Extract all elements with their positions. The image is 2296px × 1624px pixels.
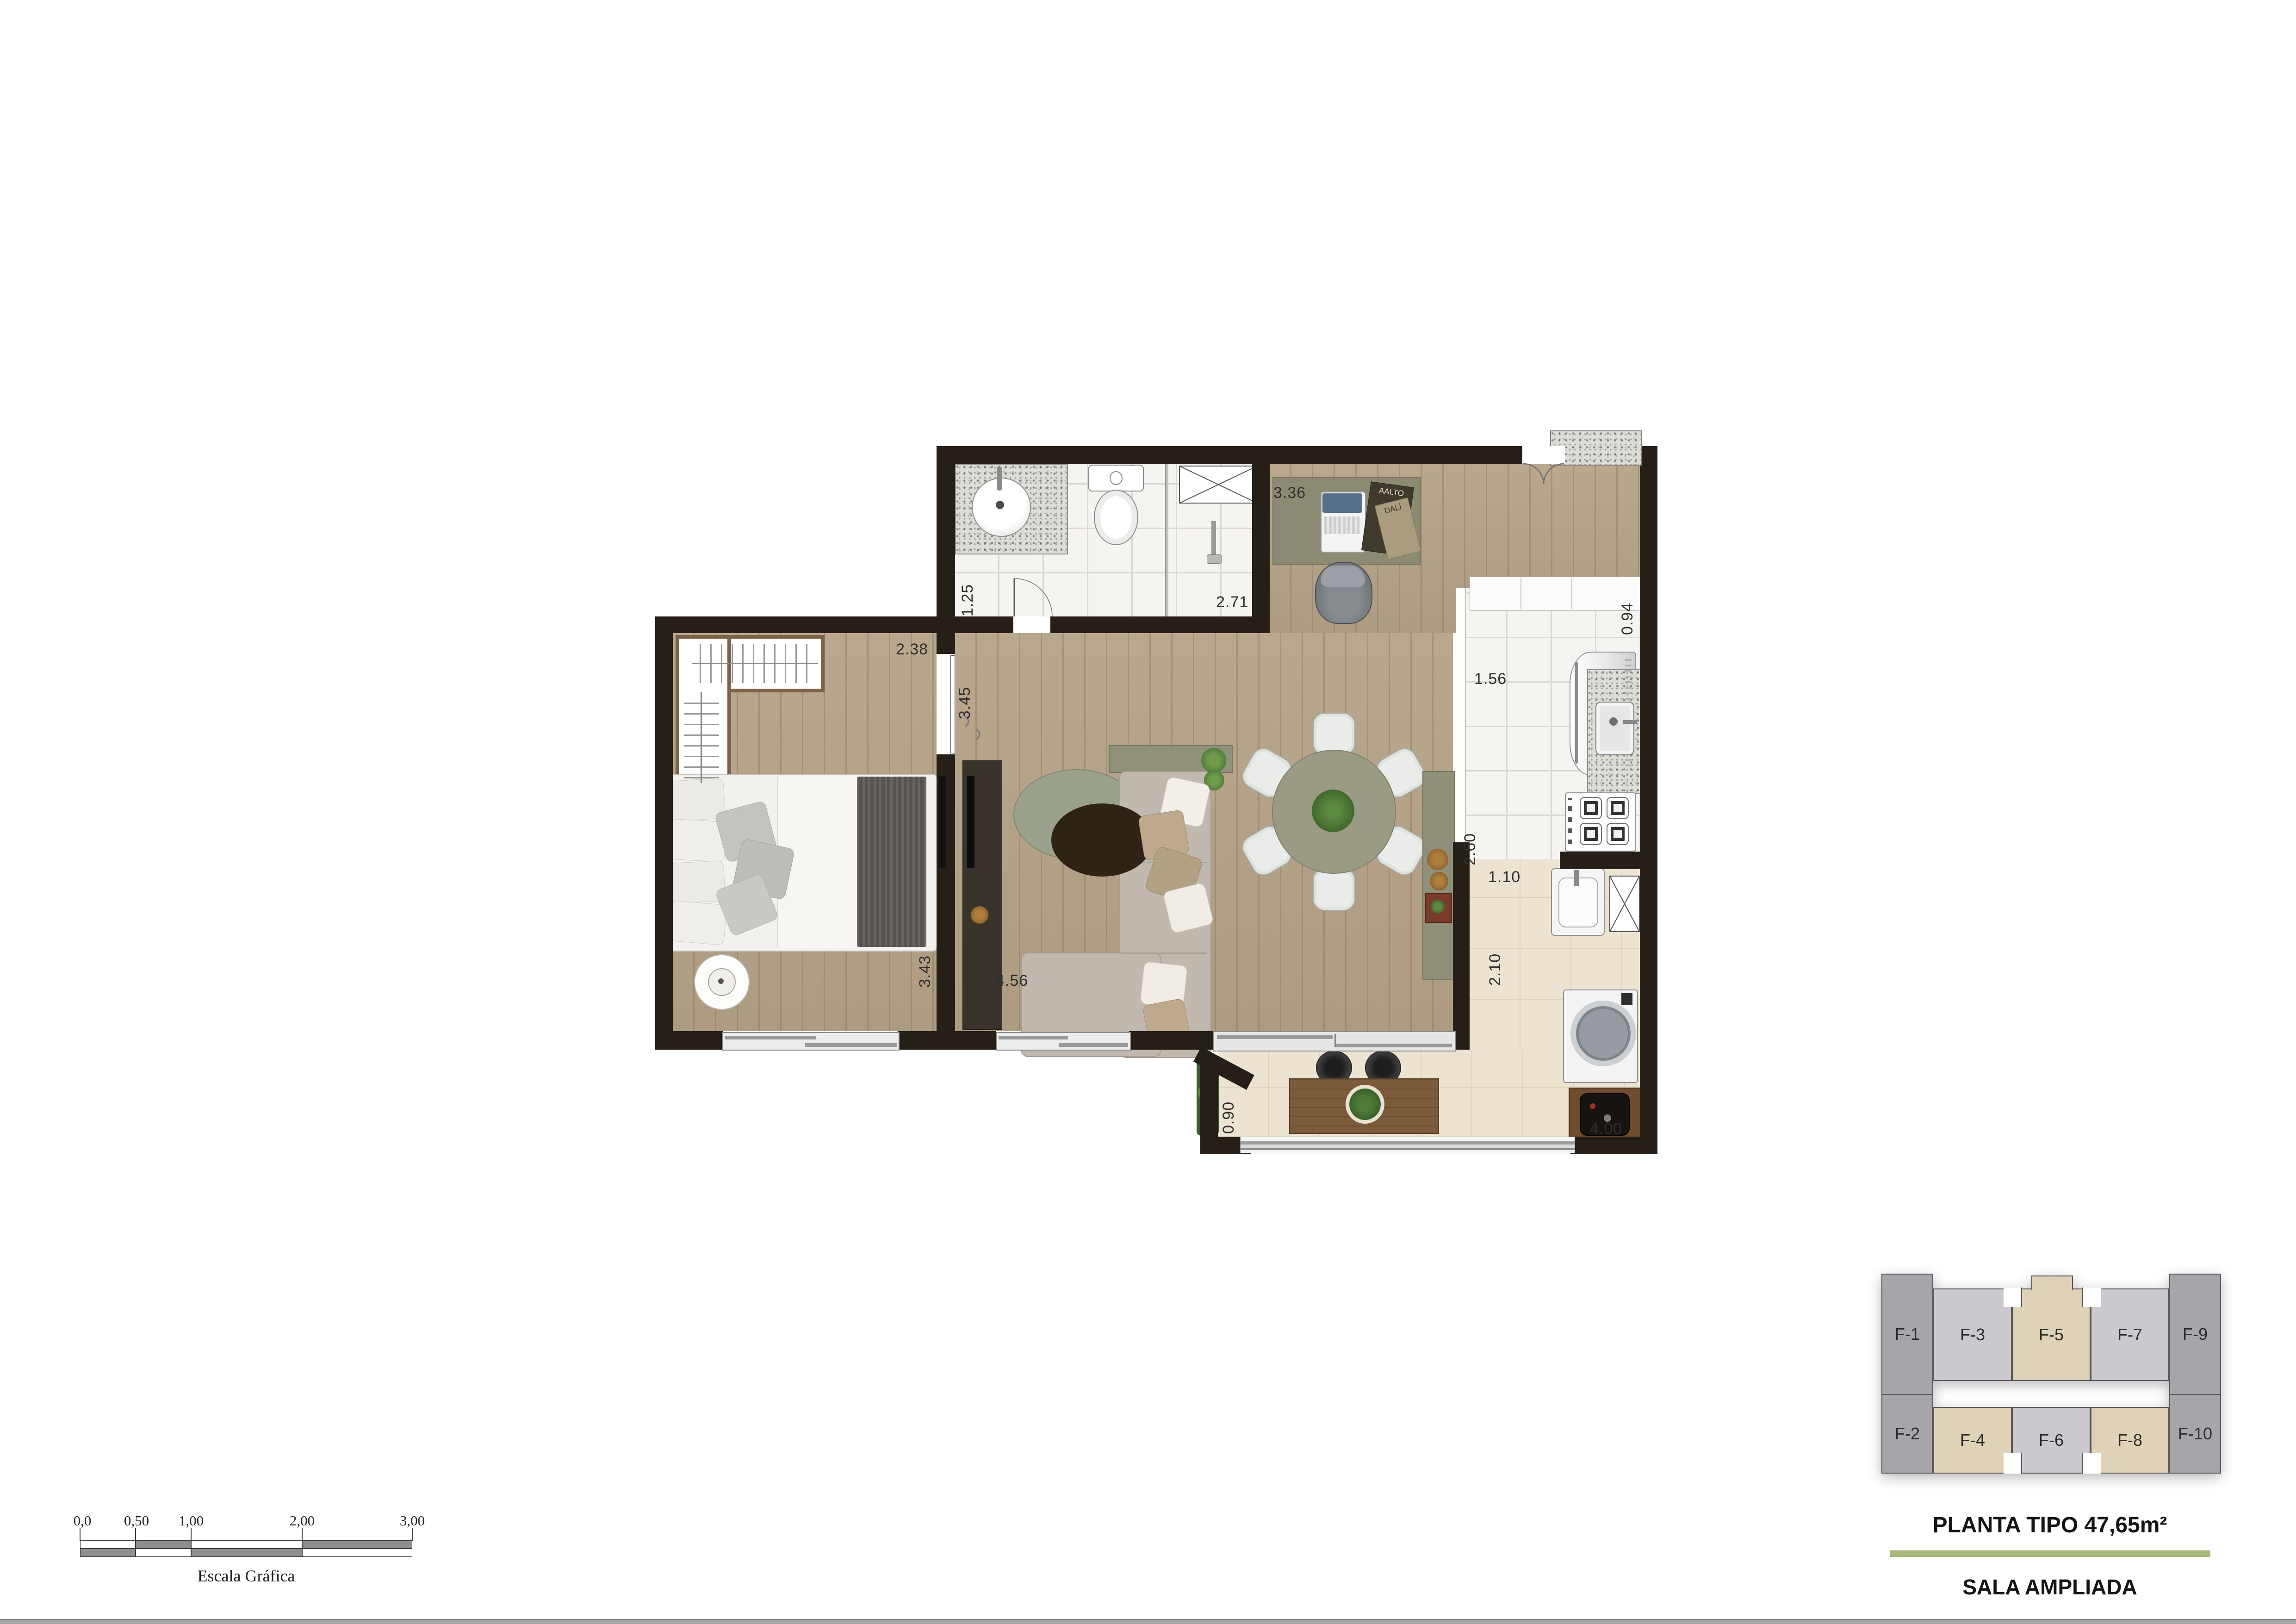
dim-bathroom-length: 2.71 bbox=[1216, 593, 1248, 611]
dim-bedroom-length: 3.43 bbox=[916, 937, 934, 988]
sideboard-tray-plant bbox=[1431, 900, 1445, 914]
dim-living-top: 3.36 bbox=[1273, 484, 1306, 502]
bedroom-tv bbox=[939, 776, 946, 868]
terrace-railing bbox=[1240, 1137, 1575, 1153]
wall-terrace-bottom-right bbox=[1570, 1137, 1657, 1154]
key-unit-label: F-6 bbox=[2039, 1431, 2064, 1450]
title-divider bbox=[1890, 1550, 2210, 1557]
dim-hall-height: 3.45 bbox=[956, 668, 974, 719]
wall-bathroom-left bbox=[937, 464, 955, 616]
table-lamp-icon bbox=[718, 978, 724, 984]
terrace-sliding-door bbox=[1213, 1031, 1456, 1052]
dim-bathroom-width: 1.25 bbox=[959, 566, 977, 616]
panel-decor bbox=[971, 906, 988, 924]
key-notch bbox=[2004, 1288, 2022, 1307]
wall-bathroom-bottom-right bbox=[1050, 616, 1270, 633]
table-centerpiece-plant bbox=[1312, 790, 1354, 832]
cabinet-divider bbox=[1571, 578, 1572, 609]
key-unit-f5: F-5 bbox=[2012, 1288, 2091, 1381]
scale-label-0: 0,0 bbox=[68, 1512, 96, 1529]
dim-living-width: 4.56 bbox=[996, 972, 1028, 990]
scale-bar-segment bbox=[80, 1540, 136, 1549]
key-unit-label: F-7 bbox=[2117, 1325, 2142, 1344]
dining-chair bbox=[1313, 713, 1355, 755]
wall-right bbox=[1640, 446, 1657, 1154]
page-bottom-edge bbox=[0, 1619, 2296, 1624]
kitchen-sink bbox=[1595, 702, 1634, 755]
sideboard-decor bbox=[1430, 872, 1448, 890]
bed-throw bbox=[857, 777, 926, 947]
wall-bedroom-top bbox=[655, 616, 962, 633]
key-unit-label: F-8 bbox=[2117, 1431, 2142, 1450]
shower-head-icon bbox=[1211, 521, 1216, 556]
key-unit-f7: F-7 bbox=[2091, 1288, 2169, 1381]
shower-partition bbox=[1165, 464, 1168, 616]
dim-kitchen-width: 1.56 bbox=[1474, 670, 1507, 688]
scale-tick bbox=[412, 1528, 413, 1541]
scale-bar-segment bbox=[136, 1540, 191, 1549]
scale-tick bbox=[302, 1528, 303, 1541]
entry-door-opening bbox=[1522, 446, 1565, 464]
wall-service-left bbox=[1453, 842, 1470, 1050]
terrace-table-plant bbox=[1349, 1089, 1381, 1120]
key-unit-label: F-9 bbox=[2183, 1325, 2208, 1344]
kitchen-counter-edge bbox=[1456, 588, 1466, 852]
scale-bar-segment bbox=[302, 1549, 412, 1557]
kitchen-faucet-icon bbox=[1609, 717, 1618, 726]
panel-decor bbox=[966, 936, 987, 956]
scale-bar-segment bbox=[302, 1540, 412, 1549]
laptop-keyboard bbox=[1324, 516, 1360, 534]
stove-burner bbox=[1580, 797, 1602, 819]
key-unit-label: F-3 bbox=[1960, 1325, 1985, 1344]
scale-tick bbox=[191, 1528, 192, 1541]
office-chair-back bbox=[1321, 566, 1365, 587]
dim-bedroom-width: 2.38 bbox=[896, 641, 928, 659]
scale-label-300: 3,00 bbox=[394, 1512, 431, 1529]
fridge-handle bbox=[1575, 662, 1578, 764]
key-unit-label: F-5 bbox=[2039, 1325, 2064, 1344]
scale-bar-segment bbox=[136, 1549, 191, 1557]
key-unit-f9: F-9 bbox=[2169, 1274, 2221, 1395]
toilet-button bbox=[1110, 471, 1123, 485]
wardrobe-rail bbox=[692, 663, 818, 664]
scale-bar-segment bbox=[191, 1540, 302, 1549]
dim-service-length: 2.10 bbox=[1486, 935, 1504, 986]
key-unit-f1: F-1 bbox=[1881, 1274, 1933, 1395]
kitchen-cabinet-band bbox=[1470, 577, 1641, 611]
cabinet-divider bbox=[1520, 578, 1521, 609]
floorplan-page: AALTO DALÍ bbox=[0, 0, 2296, 1624]
wall-bedroom-left bbox=[655, 616, 673, 1050]
key-unit-f2: F-2 bbox=[1881, 1394, 1933, 1474]
bathroom-faucet-icon bbox=[997, 467, 1002, 491]
key-unit-label: F-2 bbox=[1895, 1424, 1920, 1444]
scale-label-050: 0,50 bbox=[118, 1512, 155, 1529]
washer-controls bbox=[1621, 993, 1632, 1005]
living-window bbox=[996, 1032, 1131, 1051]
kitchen-faucet-icon bbox=[1623, 720, 1637, 724]
bathroom-faucet-icon bbox=[996, 501, 1004, 509]
key-unit-f4: F-4 bbox=[1933, 1407, 2012, 1474]
console-plant bbox=[1201, 748, 1226, 773]
scale-label-100: 1,00 bbox=[173, 1512, 210, 1529]
dining-chair bbox=[1313, 868, 1355, 911]
sofa-seam bbox=[1122, 952, 1207, 954]
stove-knobs bbox=[1568, 798, 1572, 844]
scale-caption: Escala Gráfica bbox=[154, 1566, 339, 1586]
dim-kitchen-length: 2.60 bbox=[1461, 815, 1479, 865]
scale-tick bbox=[135, 1528, 136, 1541]
bbq-ember bbox=[1590, 1103, 1595, 1109]
bathroom-window bbox=[1179, 466, 1258, 504]
sideboard-decor bbox=[1427, 849, 1448, 870]
laptop-screen bbox=[1322, 493, 1362, 513]
key-plan: F-1 F-2 F-9 F-10 F-3 F-5 F-7 F-4 F-6 F-8 bbox=[1879, 1274, 2222, 1474]
dim-service-width: 1.10 bbox=[1488, 868, 1520, 886]
key-unit-label: F-10 bbox=[2178, 1424, 2212, 1444]
bedroom-door-leaf bbox=[950, 655, 955, 753]
stove-burner bbox=[1580, 823, 1602, 845]
scale-bar-segment bbox=[80, 1549, 136, 1557]
scale-bar-segment bbox=[191, 1549, 302, 1557]
washer-drum bbox=[1570, 1001, 1636, 1066]
key-notch bbox=[2004, 1453, 2022, 1474]
bed-pillow bbox=[668, 900, 727, 946]
wardrobe-rail bbox=[701, 692, 702, 783]
bedroom-window bbox=[722, 1032, 900, 1051]
tank-faucet-icon bbox=[1574, 870, 1579, 886]
wall-bedroom-right-stub bbox=[937, 633, 955, 654]
living-tv bbox=[967, 776, 974, 868]
wall-bottom-2 bbox=[898, 1031, 996, 1050]
wall-bottom-1 bbox=[655, 1031, 723, 1050]
key-unit-f3: F-3 bbox=[1933, 1288, 2012, 1381]
key-unit-f6: F-6 bbox=[2012, 1407, 2091, 1474]
page-subtitle: SALA AMPLIADA bbox=[1888, 1574, 2212, 1599]
dim-terrace-length: 4.00 bbox=[1590, 1120, 1622, 1138]
dim-right-side: 0.94 bbox=[1619, 584, 1637, 635]
entry-door-swing bbox=[1521, 463, 1566, 487]
stove-burner bbox=[1607, 823, 1629, 845]
key-unit-f10: F-10 bbox=[2169, 1394, 2221, 1474]
key-unit-label: F-1 bbox=[1895, 1325, 1920, 1344]
stove-burner bbox=[1607, 797, 1629, 819]
key-unit-f5-tab bbox=[2031, 1276, 2073, 1290]
shower-head-icon bbox=[1207, 554, 1222, 564]
dim-terrace-width: 0.90 bbox=[1220, 1088, 1238, 1134]
wall-bathroom-bottom-left bbox=[962, 616, 1013, 633]
bathroom-door-swing bbox=[1011, 577, 1054, 619]
scale-tick bbox=[80, 1528, 81, 1541]
key-unit-label: F-4 bbox=[1960, 1431, 1985, 1450]
coffee-table bbox=[1051, 803, 1153, 877]
key-unit-f8: F-8 bbox=[2091, 1407, 2169, 1474]
key-notch bbox=[2082, 1288, 2101, 1307]
toilet-bowl bbox=[1094, 490, 1138, 545]
service-window bbox=[1609, 876, 1640, 932]
key-notch bbox=[2082, 1453, 2101, 1474]
scale-label-200: 2,00 bbox=[284, 1512, 321, 1529]
wall-bathroom-right bbox=[1252, 464, 1270, 616]
wall-kitchen-bottom bbox=[1560, 852, 1657, 869]
page-title: PLANTA TIPO 47,65m² bbox=[1888, 1512, 2212, 1538]
